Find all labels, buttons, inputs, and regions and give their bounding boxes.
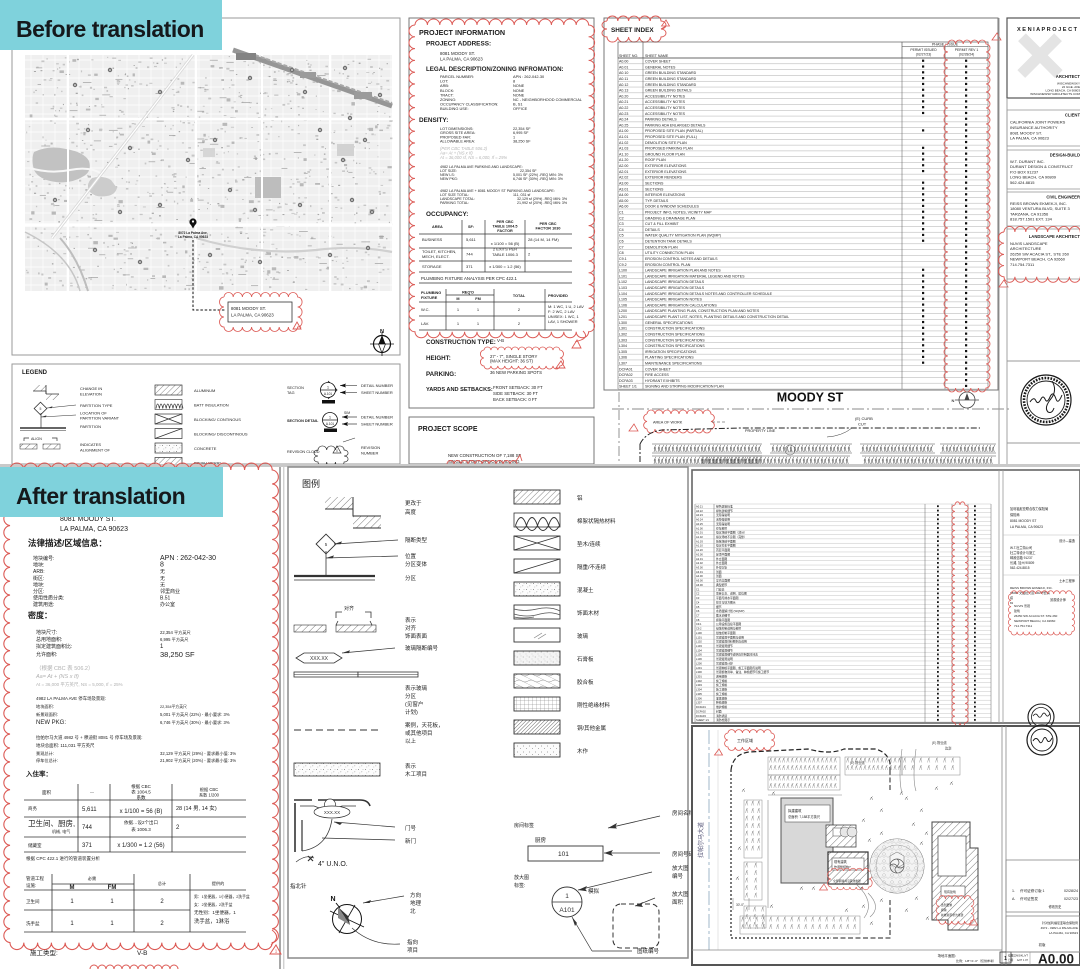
svg-text:隔重/不连续: 隔重/不连续	[577, 563, 607, 571]
svg-text:W.C.: W.C.	[421, 307, 430, 312]
svg-text:LA PALMA, CA 90623: LA PALMA, CA 90623	[440, 57, 483, 62]
svg-text:PROJECT ADDRESS:: PROJECT ADDRESS:	[426, 41, 491, 48]
svg-text:TAG: TAG	[287, 391, 295, 395]
svg-text:A1.03: A1.03	[696, 539, 703, 543]
svg-text:38,250 SF: 38,250 SF	[513, 140, 531, 144]
svg-text:LA PALMA, CA 90623: LA PALMA, CA 90623	[1010, 525, 1043, 529]
svg-text:CONSTRUCTION TYPE:: CONSTRUCTION TYPE:	[426, 339, 496, 346]
svg-text:PROPOSED SITE PLAN (PARTIAL): PROPOSED SITE PLAN (PARTIAL)	[645, 129, 703, 133]
svg-text:8: 8	[160, 562, 164, 569]
svg-text:REISS BROWN EKMEKJI, INC.: REISS BROWN EKMEKJI, INC.	[1010, 586, 1053, 590]
svg-text:LAV.: LAV.	[421, 321, 429, 326]
svg-text:HEIGHT:: HEIGHT:	[426, 355, 451, 362]
svg-text:玻璃: 玻璃	[577, 632, 589, 640]
svg-text:FM: FM	[108, 885, 117, 891]
svg-text:边割: 边割	[945, 746, 951, 751]
svg-text:PARTITION VARIANT: PARTITION VARIANT	[80, 416, 120, 421]
svg-text:5,611: 5,611	[466, 237, 476, 242]
svg-text:REQ'D: REQ'D	[462, 291, 474, 295]
svg-text:1: 1	[1004, 956, 1007, 962]
svg-text:A0.13: A0.13	[619, 89, 628, 93]
svg-text:BUILDING USE:: BUILDING USE:	[440, 106, 469, 111]
svg-text:A.101: A.101	[326, 422, 335, 426]
svg-text:INSURANCE AUTHORITY: INSURANCE AUTHORITY	[1010, 125, 1058, 130]
svg-text:L300: L300	[696, 670, 702, 674]
svg-text:LANDSCAPE IRRIGATION DETAILS N: LANDSCAPE IRRIGATION DETAILS NOTES AND C…	[645, 292, 773, 296]
svg-text:北: 北	[410, 907, 416, 915]
svg-text:36 NEW PARKING SPOTS: 36 NEW PARKING SPOTS	[490, 370, 542, 375]
svg-text:A3.01: A3.01	[619, 187, 628, 191]
svg-text:M: M	[456, 297, 459, 301]
svg-text:A0.24: A0.24	[619, 118, 628, 122]
svg-text:GRADING & DRAINAGE PLAN: GRADING & DRAINAGE PLAN	[645, 216, 696, 220]
svg-text:邮政信箱 91237: 邮政信箱 91237	[1010, 555, 1033, 560]
svg-text:A0.01: A0.01	[619, 65, 628, 69]
svg-text:设计—建造: 设计—建造	[1059, 538, 1076, 543]
svg-text:4972 - 4982 LA PALMA AVE: 4972 - 4982 LA PALMA AVE	[1041, 926, 1078, 930]
svg-text:ELEVATION: ELEVATION	[80, 392, 102, 397]
svg-text:C1: C1	[696, 587, 700, 591]
svg-text:地块编号:: 地块编号:	[33, 555, 54, 562]
svg-text:FACTOR 1030: FACTOR 1030	[535, 227, 560, 231]
svg-text:放大图: 放大图	[672, 864, 689, 872]
svg-text:地块总面积: 111,031 平方英尺: 地块总面积: 111,031 平方英尺	[36, 742, 95, 749]
svg-text:BUSINESS: BUSINESS	[422, 237, 443, 242]
svg-text:地块尺寸:: 地块尺寸:	[36, 629, 57, 636]
svg-text:A1.00: A1.00	[696, 526, 703, 530]
svg-text:C7: C7	[696, 613, 700, 617]
svg-text:L101: L101	[619, 274, 627, 278]
svg-text:PLUMBING FIXTURE ANALYSIS PER: PLUMBING FIXTURE ANALYSIS PER CPC 422.1	[421, 276, 518, 281]
svg-text:ALIGNMENT OF: ALIGNMENT OF	[80, 448, 110, 453]
svg-text:并恢复原状为重建: 并恢复原状为重建	[941, 913, 964, 917]
svg-text:建筑用途:: 建筑用途:	[33, 601, 54, 608]
svg-text:EXTERIOR ELEVATIONS: EXTERIOR ELEVATIONS	[645, 164, 687, 168]
svg-text:C3: C3	[619, 222, 624, 226]
svg-text:L200: L200	[619, 309, 627, 313]
svg-text:Aa= At + (NS x If): Aa= At + (NS x If)	[35, 674, 79, 680]
svg-text:X E N I A P R O J E C T: X E N I A P R O J E C T	[1017, 27, 1078, 33]
svg-text:L102: L102	[619, 280, 627, 284]
svg-text:38,250 SF: 38,250 SF	[160, 650, 195, 659]
svg-text:分区:: 分区:	[33, 588, 44, 595]
svg-text:26250 SW ACACIA ST. STE 260: 26250 SW ACACIA ST. STE 260	[1014, 614, 1058, 618]
svg-text:PARKING DETAILS: PARKING DETAILS	[645, 118, 677, 122]
svg-text:表示: 表示	[405, 616, 417, 624]
svg-text:洗手盆，1淋浴: 洗手盆，1淋浴	[194, 917, 230, 925]
svg-text:562.424.8815: 562.424.8815	[1010, 180, 1035, 185]
svg-text:无: 无	[160, 582, 165, 588]
svg-text:根据 CPC 422.1 进行的管道装置分析: 根据 CPC 422.1 进行的管道装置分析	[26, 855, 101, 862]
svg-text:ARB:: ARB:	[33, 569, 45, 575]
svg-text:L300: L300	[619, 321, 627, 325]
svg-text:必需: 必需	[88, 875, 96, 882]
svg-text:ACCESSIBILITY NOTES: ACCESSIBILITY NOTES	[645, 94, 686, 98]
svg-text:6,995 SF: 6,995 SF	[513, 131, 529, 135]
svg-text:A4.00: A4.00	[696, 574, 703, 578]
svg-text:L305: L305	[696, 692, 702, 696]
svg-text:A1.20: A1.20	[696, 548, 703, 552]
svg-text:达到要求: 达到要求	[941, 903, 952, 907]
svg-text:房间标签: 房间标签	[514, 822, 534, 829]
svg-text:A0.23: A0.23	[696, 513, 703, 517]
svg-text:FM: FM	[475, 297, 480, 301]
svg-text:门号: 门号	[405, 824, 417, 832]
svg-text:设施:: 设施:	[26, 882, 36, 889]
svg-text:818.757.1501 EXT. 134: 818.757.1501 EXT. 134	[1010, 217, 1053, 222]
svg-text:APN : 262-042-30: APN : 262-042-30	[513, 74, 545, 79]
svg-text:DCFA03: DCFA03	[619, 379, 633, 383]
svg-text:A.: A.	[1012, 897, 1015, 901]
svg-text:拆除: 拆除	[941, 908, 947, 912]
svg-text:A.101: A.101	[324, 392, 333, 396]
svg-text:案例，天花板，: 案例，天花板，	[405, 721, 444, 729]
svg-text:B.51: B.51	[160, 596, 171, 602]
svg-text:A3.01: A3.01	[696, 570, 703, 574]
svg-text:A5.00: A5.00	[619, 199, 628, 203]
svg-text:PARKING TOTAL:: PARKING TOTAL:	[440, 201, 469, 205]
svg-text:(02/28/24): (02/28/24)	[959, 53, 974, 57]
svg-text:工作区域: 工作区域	[737, 737, 753, 743]
svg-text:模拟: 模拟	[588, 887, 600, 895]
svg-text:PROPOSED SITE PLAN (FULL): PROPOSED SITE PLAN (FULL)	[645, 135, 697, 139]
svg-text:After translation: After translation	[16, 483, 185, 509]
svg-text:C2: C2	[619, 216, 624, 220]
svg-text:GROUND FLOOR PLAN: GROUND FLOOR PLAN	[645, 152, 685, 156]
svg-text:CUT & FILL EXHIBIT: CUT & FILL EXHIBIT	[645, 222, 680, 226]
svg-text:LANDSCAPE IRRIGATION DETAILS: LANDSCAPE IRRIGATION DETAILS	[645, 286, 705, 290]
svg-text:IRRIGATION SPECIFICATIONS: IRRIGATION SPECIFICATIONS	[645, 350, 697, 354]
svg-text:L303: L303	[696, 683, 702, 687]
svg-text:371: 371	[466, 264, 473, 269]
svg-text:SHEET INDEX: SHEET INDEX	[611, 27, 654, 34]
svg-text:建筑: 建筑	[1014, 608, 1020, 613]
svg-text:拉帕尔马大道 4982 号 + 穆迪街 8081 号 停车场: 拉帕尔马大道 4982 号 + 穆迪街 8081 号 停车场及景观:	[36, 734, 143, 741]
svg-text:Before translation: Before translation	[16, 16, 204, 42]
svg-text:6,995 平方英尺: 6,995 平方英尺	[160, 636, 188, 643]
svg-text:BLOCKING/ DISCONTINOUS: BLOCKING/ DISCONTINOUS	[194, 432, 248, 437]
svg-text:STORAGE: STORAGE	[422, 264, 442, 269]
svg-text:744: 744	[82, 825, 93, 831]
svg-text:木工项目: 木工项目	[405, 770, 427, 778]
svg-text:分区变体: 分区变体	[405, 560, 428, 568]
svg-text:L105: L105	[619, 298, 627, 302]
svg-text:NEWPORT BEACH, CA 92660: NEWPORT BEACH, CA 92660	[1014, 619, 1056, 623]
svg-text:位置: 位置	[405, 552, 417, 560]
svg-text:A6.00: A6.00	[696, 583, 703, 587]
svg-text:(MAX HEIGHT: 36 ST): (MAX HEIGHT: 36 ST)	[490, 359, 534, 364]
svg-text:胶合板: 胶合板	[577, 678, 594, 686]
svg-text:x 1/300 = 1.2 (56): x 1/300 = 1.2 (56)	[117, 843, 164, 849]
svg-text:A1.02: A1.02	[696, 535, 703, 539]
svg-text:L302: L302	[696, 679, 702, 683]
svg-text:L102: L102	[696, 640, 702, 644]
svg-text:消防栓图示: 消防栓图示	[716, 718, 730, 722]
svg-text:LEGAL DESCRIPTION/ZONING INFRO: LEGAL DESCRIPTION/ZONING INFROMATION:	[426, 66, 564, 73]
svg-text:A1.02: A1.02	[619, 141, 628, 145]
svg-text:地块面积:: 地块面积:	[36, 703, 54, 710]
svg-text:洗手盆: 洗手盆	[26, 920, 40, 927]
svg-text:INDICATES: INDICATES	[80, 442, 101, 447]
svg-text:ALUMINUM: ALUMINUM	[194, 388, 215, 393]
svg-text:V-B: V-B	[137, 950, 147, 957]
svg-text:混凝土: 混凝土	[577, 586, 594, 594]
svg-text:L306: L306	[619, 356, 627, 360]
svg-text:6,746 SF (30%) -REQ MIN: 3%: 6,746 SF (30%) -REQ MIN: 3%	[513, 177, 564, 181]
svg-text:L307: L307	[619, 361, 627, 365]
svg-text:DEMOLITION SITE PLAN: DEMOLITION SITE PLAN	[645, 141, 687, 145]
svg-text:更改于: 更改于	[405, 499, 422, 507]
svg-text:修改历史: 修改历史	[1049, 904, 1063, 909]
svg-text:对齐: 对齐	[344, 605, 354, 612]
svg-text:EROSION CONTROL PLAN: EROSION CONTROL PLAN	[645, 263, 691, 267]
svg-text:A1.00: A1.00	[619, 129, 628, 133]
svg-text:NC - NEIGHBORHOOD COMMERCIAL: NC - NEIGHBORHOOD COMMERCIAL	[513, 97, 583, 102]
svg-text:木作: 木作	[577, 747, 589, 755]
svg-text:卫生间、厨房,: 卫生间、厨房,	[28, 818, 75, 828]
svg-text:FACTOR: FACTOR	[497, 229, 513, 233]
svg-text:PLUMBING: PLUMBING	[421, 291, 441, 295]
svg-text:拟定建筑面积比:: 拟定建筑面积比:	[36, 643, 72, 650]
svg-text:总计: 总计	[158, 880, 166, 887]
svg-text:PERMIT REV 1: PERMIT REV 1	[955, 48, 979, 52]
svg-text:AREA OF WORK: AREA OF WORK	[653, 421, 683, 425]
svg-text:INTERIOR ELEVATIONS: INTERIOR ELEVATIONS	[645, 193, 686, 197]
svg-text:BATT INSULATION: BATT INSULATION	[194, 403, 229, 408]
svg-text:无: 无	[160, 576, 165, 582]
svg-text:A0.25: A0.25	[619, 123, 628, 127]
svg-text:ALLOWABLE AREA:: ALLOWABLE AREA:	[440, 140, 475, 144]
svg-text:放大图: 放大图	[514, 874, 529, 881]
svg-text:PARKING ADA ENLARGED DETAILS: PARKING ADA ENLARGED DETAILS	[645, 123, 706, 127]
svg-text:C3: C3	[696, 596, 700, 600]
svg-text:景观总计:: 景观总计:	[36, 750, 54, 757]
svg-text:(见窗户: (见窗户	[405, 700, 423, 708]
svg-text:L304: L304	[696, 688, 702, 692]
svg-text:A4.00: A4.00	[619, 193, 628, 197]
svg-text:MOODY ST: MOODY ST	[777, 391, 844, 405]
svg-text:LA PALMA, CA 90623: LA PALMA, CA 90623	[1049, 931, 1078, 935]
svg-text:DCFA03: DCFA03	[696, 714, 706, 718]
svg-text:A0.00: A0.00	[619, 60, 628, 64]
svg-text:LAV, 1 SHOWER: LAV, 1 SHOWER	[548, 319, 578, 324]
svg-text:A5.00: A5.00	[696, 579, 703, 583]
svg-text:714.754.7311: 714.754.7311	[1014, 624, 1032, 628]
svg-text:允许面积:: 允许面积:	[36, 651, 57, 658]
svg-text:L106: L106	[619, 303, 627, 307]
svg-text:22,354 平方英尺: 22,354 平方英尺	[160, 629, 191, 636]
svg-text:SIGNING AND STRIPING MODIFICAT: SIGNING AND STRIPING MODIFICATION PLAN	[645, 385, 724, 389]
svg-text:DCFA01: DCFA01	[619, 367, 633, 371]
svg-text:NEW PKG:: NEW PKG:	[440, 177, 458, 181]
svg-text:表示: 表示	[405, 762, 417, 770]
svg-text:(E) 物业线: (E) 物业线	[850, 760, 866, 765]
svg-text:C4: C4	[696, 600, 700, 604]
svg-text:饰面表面: 饰面表面	[405, 632, 428, 640]
svg-text:A1.10: A1.10	[619, 152, 628, 156]
svg-text:C5: C5	[619, 234, 624, 238]
svg-text:L301: L301	[696, 675, 702, 679]
svg-text:A0.23: A0.23	[619, 112, 628, 116]
svg-text:APN : 262-042-30: APN : 262-042-30	[160, 555, 216, 562]
svg-text:储藏室: 储藏室	[28, 842, 42, 849]
svg-text:At = 36,000 平方英尺, NS = 5,000,: At = 36,000 平方英尺, NS = 5,000, If = 25%	[36, 681, 123, 688]
svg-text:管道工程: 管道工程	[26, 875, 44, 882]
svg-text:MECH, ELECT.: MECH, ELECT.	[422, 254, 450, 259]
svg-text:NEW PKG:: NEW PKG:	[36, 720, 66, 726]
svg-text:LANDSCAPE IRRIGATION CALCULATI: LANDSCAPE IRRIGATION CALCULATIONS	[645, 303, 717, 307]
svg-text:杜兰特设计与施工: 杜兰特设计与施工	[1010, 550, 1036, 555]
svg-text:30'-0": 30'-0"	[736, 903, 744, 907]
svg-text:BLOCKING/ CONTINOUS: BLOCKING/ CONTINOUS	[194, 417, 241, 422]
svg-text:SHEET NUMBER: SHEET NUMBER	[361, 422, 393, 427]
svg-text:L200: L200	[696, 661, 702, 665]
svg-text:8081 MOODY ST.: 8081 MOODY ST.	[1010, 130, 1042, 135]
svg-text:LANDSCAPE ARCHITECT: LANDSCAPE ARCHITECT	[1029, 234, 1080, 239]
svg-text:MS/KL/VT: MS/KL/VT	[1016, 954, 1028, 958]
svg-text:铜/其他金属: 铜/其他金属	[577, 724, 606, 732]
svg-text:图例: 图例	[302, 478, 320, 489]
svg-text:场地平面图：: 场地平面图：	[938, 953, 958, 958]
svg-text:PERMIT ISSUED: PERMIT ISSUED	[910, 48, 937, 52]
svg-text:日期: 日期	[1008, 958, 1014, 962]
svg-text:A0.25: A0.25	[696, 522, 703, 526]
svg-text:L106: L106	[696, 657, 702, 661]
svg-text:使用性质分类:: 使用性质分类:	[33, 595, 64, 602]
svg-text:厨房: 厨房	[535, 836, 547, 844]
svg-text:PROJECT SCOPE: PROJECT SCOPE	[418, 426, 478, 433]
svg-text:机械, 电气: 机械, 电气	[52, 828, 70, 834]
svg-text:C4: C4	[619, 228, 624, 232]
svg-text:GREEN BUILDING DETAILS: GREEN BUILDING DETAILS	[645, 89, 692, 93]
svg-text:(02/27/23): (02/27/23)	[916, 53, 931, 57]
svg-text:C8: C8	[696, 618, 700, 622]
svg-text:LANDSCAPE IRRIGATION PLAN AND: LANDSCAPE IRRIGATION PLAN AND NOTES	[645, 269, 721, 273]
svg-text:DETENTION TANK DETAILS: DETENTION TANK DETAILS	[645, 240, 692, 244]
svg-text:A1.03: A1.03	[619, 147, 628, 151]
svg-text:DETAIL NUMBER: DETAIL NUMBER	[361, 415, 393, 420]
svg-text:A0.00: A0.00	[1038, 952, 1074, 967]
svg-text:A/27 1 07: A/27 1 07	[1017, 958, 1029, 962]
svg-text:玻璃隔断编号: 玻璃隔断编号	[405, 644, 439, 652]
svg-text:TABLE 1004.5: TABLE 1004.5	[492, 225, 517, 229]
svg-text:许可证签发: 许可证签发	[1020, 896, 1038, 901]
svg-text:许可证修订版 1: 许可证修订版 1	[1020, 888, 1045, 893]
svg-text:全部拆除并沿其线重建: 全部拆除并沿其线重建	[833, 879, 861, 883]
svg-text:EROSION CONTROL NOTES AND DETA: EROSION CONTROL NOTES AND DETAILS	[645, 257, 718, 261]
svg-text:石膏板: 石膏板	[577, 655, 594, 663]
svg-text:M: M	[70, 885, 75, 891]
svg-text:SHEET NAME: SHEET NAME	[645, 54, 669, 58]
svg-text:NUVIS 景观: NUVIS 景观	[1014, 603, 1030, 608]
svg-text:L100: L100	[696, 631, 702, 635]
svg-text:CONSTRUCTION SPECIFICATIONS: CONSTRUCTION SPECIFICATIONS	[645, 344, 705, 348]
svg-text:指北针: 指北针	[290, 882, 307, 890]
svg-text:DEMOLITION PLAN: DEMOLITION PLAN	[645, 245, 678, 249]
svg-text:ACCESSIBILITY NOTES: ACCESSIBILITY NOTES	[645, 112, 686, 116]
svg-text:PARKING:: PARKING:	[426, 371, 456, 378]
svg-text:办公室: 办公室	[160, 601, 175, 608]
svg-text:DENSITY:: DENSITY:	[419, 117, 448, 124]
svg-text:依据…设2个出口: 依据…设2个出口	[124, 819, 158, 826]
svg-text:(E) 物业线: (E) 物业线	[932, 740, 948, 745]
svg-text:GREEN BUILDING STANDARD: GREEN BUILDING STANDARD	[645, 71, 697, 75]
svg-text:PARTITION TYPE: PARTITION TYPE	[80, 403, 113, 408]
svg-text:SIDE SETBACK: 30 FT: SIDE SETBACK: 30 FT	[493, 391, 538, 396]
svg-text:图纸编号: 图纸编号	[637, 947, 660, 955]
svg-text:PER CBC: PER CBC	[496, 220, 513, 224]
svg-text:x 1/100 = 56 (B): x 1/100 = 56 (B)	[120, 809, 163, 815]
svg-text:CONSTRUCTION SPECIFICATIONS: CONSTRUCTION SPECIFICATIONS	[645, 338, 705, 342]
svg-text:YARDS AND SETBACKS:: YARDS AND SETBACKS:	[426, 387, 493, 393]
svg-text:停车位总计:: 停车位总计:	[36, 757, 58, 764]
svg-text:REVISION: REVISION	[361, 445, 380, 450]
svg-text:长滩, 加州 90809: 长滩, 加州 90809	[1010, 560, 1034, 565]
svg-text:男：1坐便器，1小便器，2洗手盆: 男：1坐便器，1小便器，2洗手盆	[194, 894, 250, 899]
svg-text:CHANGE IN: CHANGE IN	[80, 386, 102, 391]
svg-text:5,611: 5,611	[82, 807, 97, 813]
svg-text:BACK SETBACK: 0 FT: BACK SETBACK: 0 FT	[493, 397, 538, 402]
svg-text:ALIGN: ALIGN	[31, 437, 42, 441]
svg-text:WATER QUALITY MITIGATION PLAN: WATER QUALITY MITIGATION PLAN (WQMP)	[645, 234, 721, 238]
svg-text:法律描述/区域信息：: 法律描述/区域信息：	[28, 538, 107, 548]
svg-text:C9.2: C9.2	[619, 263, 627, 267]
svg-text:A0.22: A0.22	[696, 509, 703, 513]
svg-text:地块:: 地块:	[33, 562, 44, 569]
svg-text:女：2坐便器，2洗手盆: 女：2坐便器，2洗手盆	[194, 902, 233, 907]
svg-text:CUT: CUT	[858, 422, 867, 427]
svg-text:—: —	[90, 789, 94, 794]
svg-text:W.T.杜兰特公司: W.T.杜兰特公司	[1010, 545, 1032, 550]
svg-text:L103: L103	[619, 286, 627, 290]
svg-text:AREA: AREA	[432, 225, 443, 229]
svg-text:垫木/连续: 垫木/连续	[577, 540, 601, 548]
svg-text:PROPOSED PARKING PLAN: PROPOSED PARKING PLAN	[645, 147, 693, 151]
svg-text:A6.00: A6.00	[619, 205, 628, 209]
svg-text:L306: L306	[696, 696, 702, 700]
svg-text:景观设计师: 景观设计师	[1050, 597, 1067, 602]
svg-text:保险局: 保险局	[1010, 512, 1020, 517]
svg-text:XXX.XX: XXX.XX	[310, 656, 329, 662]
svg-text:C5: C5	[696, 605, 700, 609]
svg-text:绘图员: 绘图员	[1008, 954, 1016, 958]
svg-text:CONSTRUCTION SPECIFICATIONS: CONSTRUCTION SPECIFICATIONS	[645, 332, 705, 336]
svg-text:A0.21: A0.21	[619, 100, 628, 104]
svg-text:标签:: 标签:	[514, 882, 525, 889]
svg-text:22,354平方英尺: 22,354平方英尺	[160, 704, 187, 709]
svg-text:以上: 以上	[405, 737, 417, 745]
svg-text:提供的: 提供的	[212, 880, 225, 887]
svg-text:L303: L303	[619, 338, 627, 342]
svg-text:对齐: 对齐	[405, 624, 417, 632]
svg-text:4" U.N.O.: 4" U.N.O.	[318, 861, 348, 868]
svg-text:1: 1	[327, 386, 329, 390]
svg-text:面积: 面积	[42, 789, 51, 796]
svg-text:A2.00: A2.00	[696, 552, 703, 556]
svg-text:L105: L105	[696, 653, 702, 657]
svg-text:L301: L301	[619, 327, 627, 331]
svg-text:表 1006.3: 表 1006.3	[131, 826, 151, 833]
svg-text:(E) CURB: (E) CURB	[855, 416, 873, 421]
svg-text:C7: C7	[619, 245, 624, 249]
svg-text:针对加利福尼亚联合保险局: 针对加利福尼亚联合保险局	[1042, 920, 1078, 925]
svg-text:ROOF PLAN: ROOF PLAN	[645, 158, 666, 162]
svg-text:A2.01: A2.01	[696, 557, 703, 561]
svg-text:ACCESSIBILITY NOTES: ACCESSIBILITY NOTES	[645, 106, 686, 110]
svg-text:A3.00: A3.00	[696, 566, 703, 570]
svg-text:GENERAL SPECIFICATIONS: GENERAL SPECIFICATIONS	[645, 321, 693, 325]
svg-text:La Palma, CA 90623: La Palma, CA 90623	[178, 235, 208, 239]
